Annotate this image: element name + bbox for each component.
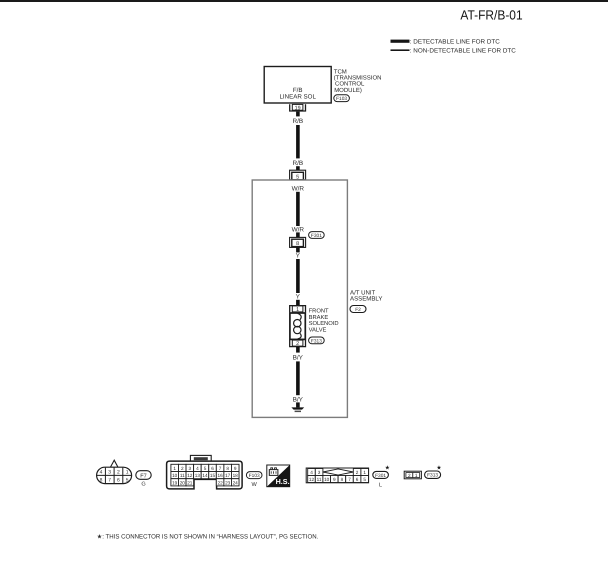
svg-text:F103: F103 <box>249 473 260 479</box>
svg-text:H.S.: H.S. <box>276 477 290 486</box>
svg-text:17: 17 <box>225 473 231 478</box>
svg-text:11: 11 <box>180 473 185 478</box>
svg-text:Y: Y <box>296 253 301 260</box>
svg-text:4: 4 <box>196 466 199 471</box>
svg-text:4: 4 <box>310 470 313 475</box>
svg-text:5: 5 <box>126 478 129 484</box>
svg-text:BRAKE: BRAKE <box>309 315 329 321</box>
svg-text:2: 2 <box>181 466 184 471</box>
svg-text:W/R: W/R <box>292 185 305 192</box>
svg-text:8: 8 <box>341 477 344 482</box>
svg-text:7: 7 <box>219 466 222 471</box>
svg-text:2: 2 <box>408 473 411 478</box>
svg-text:R/B: R/B <box>292 160 303 167</box>
svg-text:14: 14 <box>202 473 208 478</box>
svg-text:23: 23 <box>225 480 231 485</box>
svg-text:1: 1 <box>296 307 299 313</box>
svg-text:3: 3 <box>318 470 321 475</box>
svg-text:★: THIS CONNECTOR IS NOT SHOWN: ★: THIS CONNECTOR IS NOT SHOWN IN “HARNE… <box>97 534 319 541</box>
svg-text:ASSEMBLY: ASSEMBLY <box>350 296 382 303</box>
svg-text:R/B: R/B <box>292 118 303 125</box>
svg-text:9: 9 <box>333 477 336 482</box>
svg-text:B/Y: B/Y <box>293 355 304 362</box>
svg-text:: DETECTABLE LINE FOR DTC: : DETECTABLE LINE FOR DTC <box>410 39 501 46</box>
svg-text:8: 8 <box>100 478 103 484</box>
svg-text:19: 19 <box>172 480 178 485</box>
svg-text:F313: F313 <box>427 473 438 479</box>
svg-text:6: 6 <box>211 466 214 471</box>
svg-text:12: 12 <box>309 477 315 482</box>
svg-text:W: W <box>252 482 258 488</box>
svg-text:L: L <box>379 483 382 489</box>
svg-text:3: 3 <box>188 466 191 471</box>
svg-text:22: 22 <box>217 480 223 485</box>
svg-text:4: 4 <box>100 470 103 476</box>
svg-text:12: 12 <box>187 473 193 478</box>
svg-text:16: 16 <box>217 473 223 478</box>
svg-text:3: 3 <box>108 470 111 476</box>
svg-text:MODULE): MODULE) <box>334 87 362 94</box>
svg-text:11: 11 <box>317 477 322 482</box>
svg-text:TCM: TCM <box>334 69 347 76</box>
svg-text:6: 6 <box>356 477 359 482</box>
svg-text:13: 13 <box>195 473 201 478</box>
svg-text:F301: F301 <box>375 473 386 479</box>
svg-text:1: 1 <box>363 470 366 475</box>
svg-text:7: 7 <box>108 478 111 484</box>
svg-text:10: 10 <box>324 477 330 482</box>
svg-text:1: 1 <box>126 470 129 476</box>
svg-text:8: 8 <box>296 241 299 247</box>
svg-text:★: ★ <box>385 465 390 472</box>
svg-text:FRONT: FRONT <box>309 308 329 315</box>
svg-text:24: 24 <box>233 480 239 485</box>
svg-text:7: 7 <box>348 477 351 482</box>
svg-text:(TRANSMISSION: (TRANSMISSION <box>334 75 382 82</box>
svg-text:19: 19 <box>295 105 301 111</box>
svg-text:F103: F103 <box>336 96 347 102</box>
svg-text:G: G <box>141 482 145 488</box>
svg-text:10: 10 <box>172 473 178 478</box>
svg-text:6: 6 <box>117 478 120 484</box>
svg-text:2: 2 <box>296 341 299 347</box>
svg-text:8: 8 <box>226 466 229 471</box>
svg-text:2: 2 <box>356 470 359 475</box>
svg-text:5: 5 <box>363 477 366 482</box>
svg-text:AT-FR/B-01: AT-FR/B-01 <box>460 8 522 23</box>
svg-text:W/R: W/R <box>292 226 305 233</box>
svg-text:15: 15 <box>210 473 216 478</box>
svg-text:CONTROL: CONTROL <box>335 81 365 88</box>
svg-text:F313: F313 <box>311 338 322 344</box>
svg-text:: NON-DETECTABLE LINE FOR DTC: : NON-DETECTABLE LINE FOR DTC <box>410 48 517 55</box>
svg-text:9: 9 <box>234 466 237 471</box>
svg-text:F7: F7 <box>140 473 147 479</box>
svg-text:F301: F301 <box>311 233 322 239</box>
svg-text:1: 1 <box>173 466 176 471</box>
svg-text:21: 21 <box>187 480 193 485</box>
svg-text:Y: Y <box>296 294 301 301</box>
svg-text:B/Y: B/Y <box>293 396 304 403</box>
svg-text:1: 1 <box>415 473 418 478</box>
svg-text:5: 5 <box>204 466 207 471</box>
svg-text:LINEAR SOL: LINEAR SOL <box>279 94 316 101</box>
svg-text:F2: F2 <box>355 307 361 313</box>
svg-text:VALVE: VALVE <box>309 328 327 334</box>
svg-text:20: 20 <box>180 480 186 485</box>
svg-text:SOLENOID: SOLENOID <box>309 320 339 327</box>
svg-text:2: 2 <box>117 470 120 476</box>
svg-text:18: 18 <box>233 473 239 478</box>
